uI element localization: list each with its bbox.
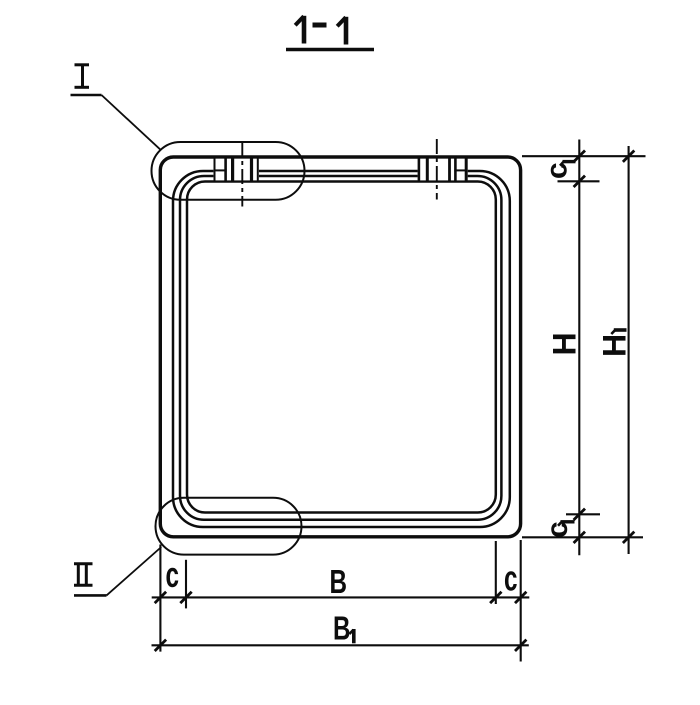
svg-text:c: c <box>166 554 180 595</box>
svg-text:B: B <box>333 610 351 647</box>
svg-text:B: B <box>330 563 348 600</box>
svg-text:H: H <box>597 334 633 357</box>
svg-text:c: c <box>541 162 574 179</box>
svg-text:c: c <box>504 558 518 599</box>
svg-text:H: H <box>547 332 583 355</box>
svg-text:c: c <box>541 521 574 538</box>
